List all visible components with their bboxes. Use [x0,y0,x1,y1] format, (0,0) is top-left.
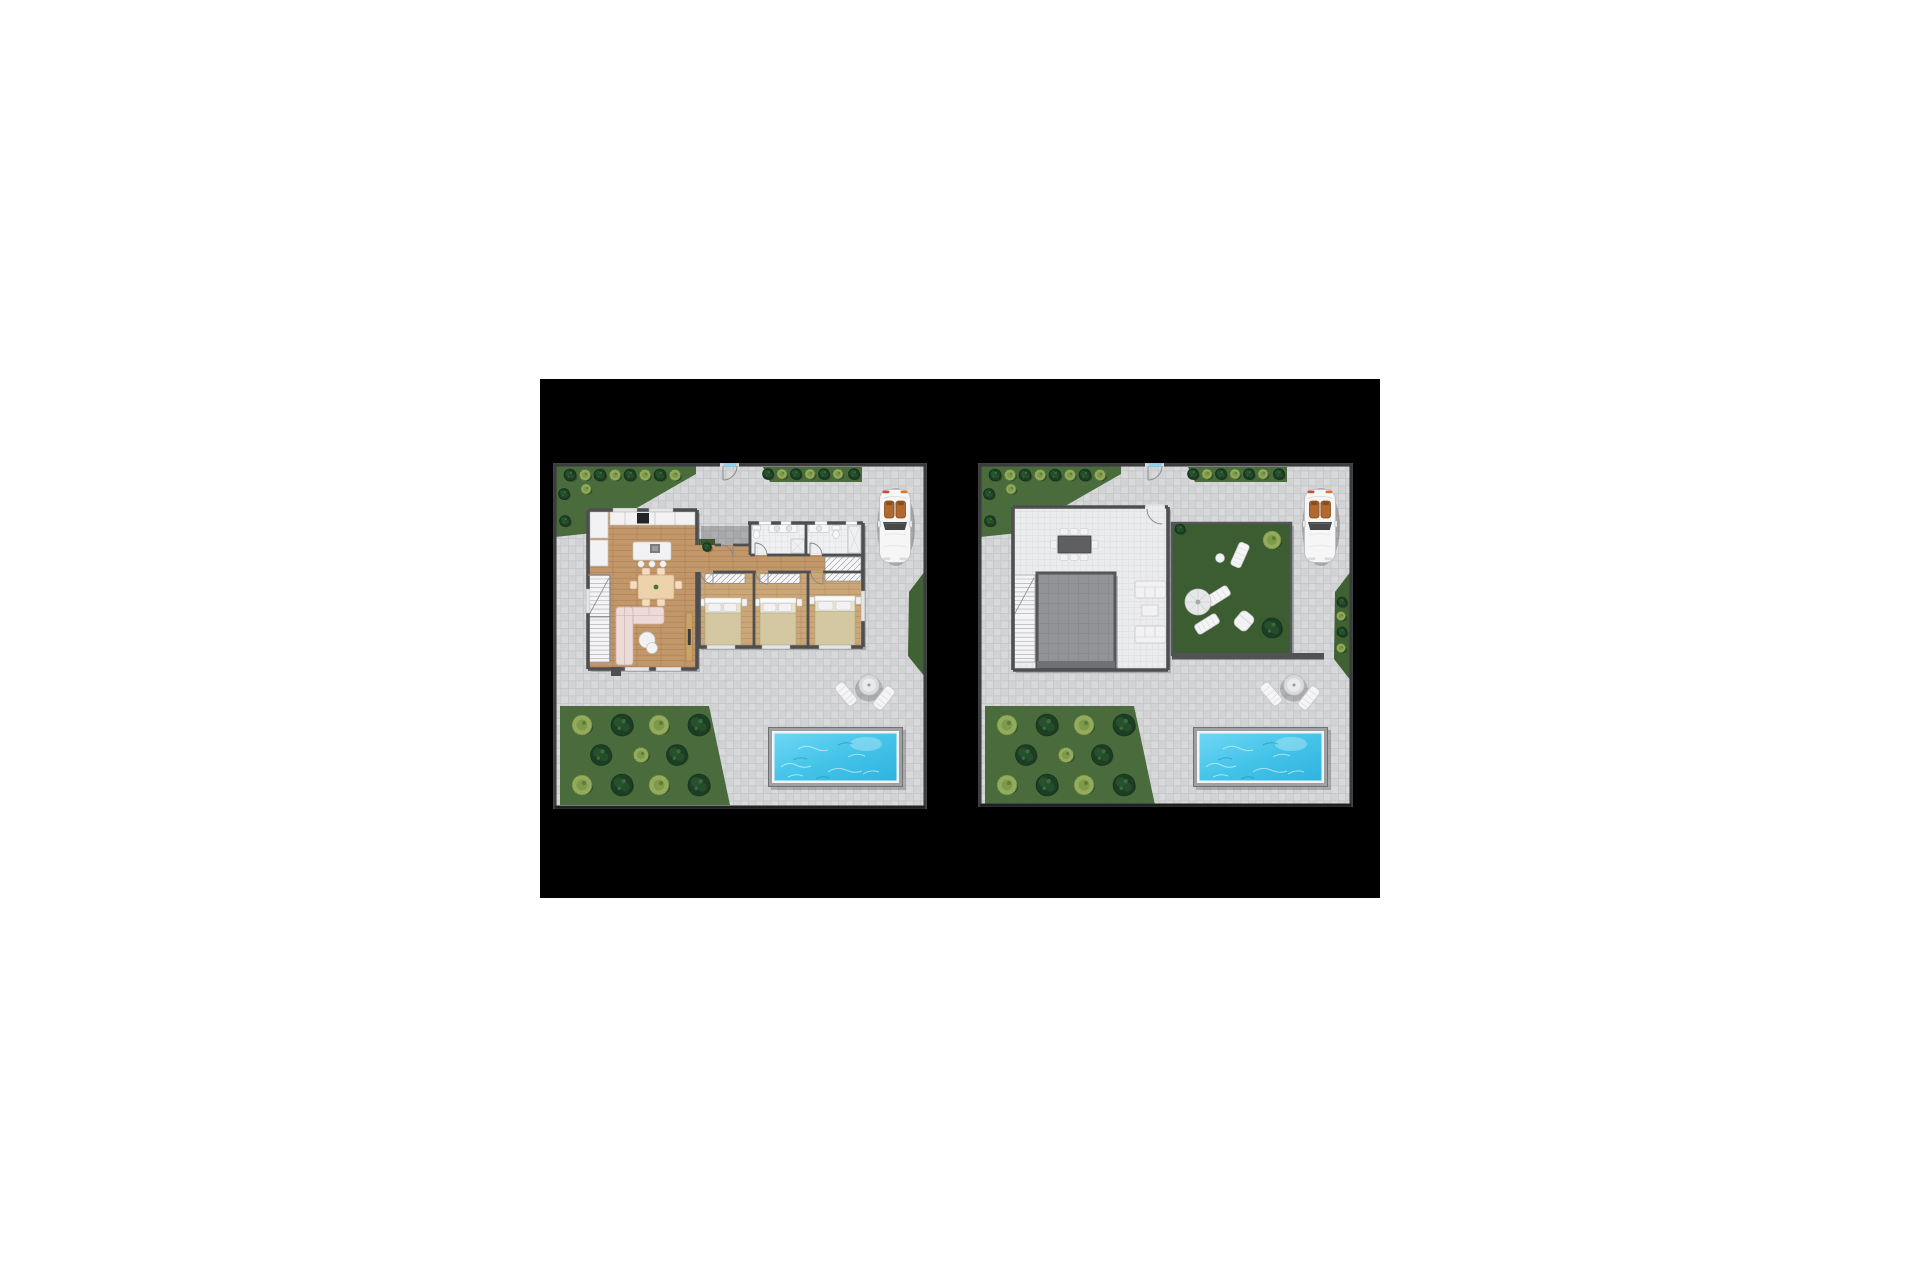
pillow [818,602,833,611]
walk-in-closet [825,557,861,581]
pillow [779,604,792,612]
side-table [1216,554,1225,563]
toilet-tank [832,526,840,531]
kitchen-counter [610,512,695,525]
swimming-pool [769,728,903,787]
vanity [769,525,797,533]
pillow [763,604,776,612]
blanket [705,613,741,645]
toilet-tank [753,526,761,531]
roof-dining-table [1058,536,1091,553]
entrance-glazing [724,463,736,466]
swimming-pool [1194,728,1328,787]
stool [638,561,644,567]
cooktop [637,513,649,524]
table-plant [654,585,659,590]
tall-cabinet [590,540,608,566]
car [1302,490,1337,563]
wall-stub [611,667,621,676]
wardrobe-1 [705,574,745,584]
tv [688,629,691,645]
parasol [1185,589,1211,615]
sink-basin [816,526,822,532]
skylight-shadow [1037,661,1115,668]
parapet-wall [1172,653,1324,660]
bedroom-2-bed [755,598,803,645]
deck-entry-gap [1146,505,1164,511]
roof-terrace-plan [978,463,1353,807]
pillow [724,604,737,612]
corridor-floor [750,555,826,571]
sink-basin [786,526,792,532]
pillow [836,602,851,611]
ground-floor-plan [553,463,927,809]
skylight-deck [1037,573,1115,668]
driveway [877,488,915,566]
staircase [588,575,610,662]
bedroom-1-bed [700,598,748,645]
roof-deck [1013,505,1171,674]
staircase [1013,575,1035,662]
wardrobe-2 [760,574,800,584]
toilet [833,530,840,538]
page [0,0,1920,1280]
fridge [590,512,608,538]
stool [649,561,655,567]
pillow [708,604,721,612]
lounge-sofa [1135,581,1166,598]
entrance-glazing [1149,463,1161,466]
car [877,490,912,563]
blanket [760,613,796,645]
lounge-sofa [1135,626,1166,643]
stool [660,561,666,567]
coffee-table-small [647,643,658,654]
toilet [753,530,760,538]
driveway [1302,488,1340,566]
lounge-table [1142,605,1158,616]
master-bed [810,596,862,645]
photo-matte [540,379,1380,898]
sink-basin [774,526,780,532]
blanket [815,612,855,646]
